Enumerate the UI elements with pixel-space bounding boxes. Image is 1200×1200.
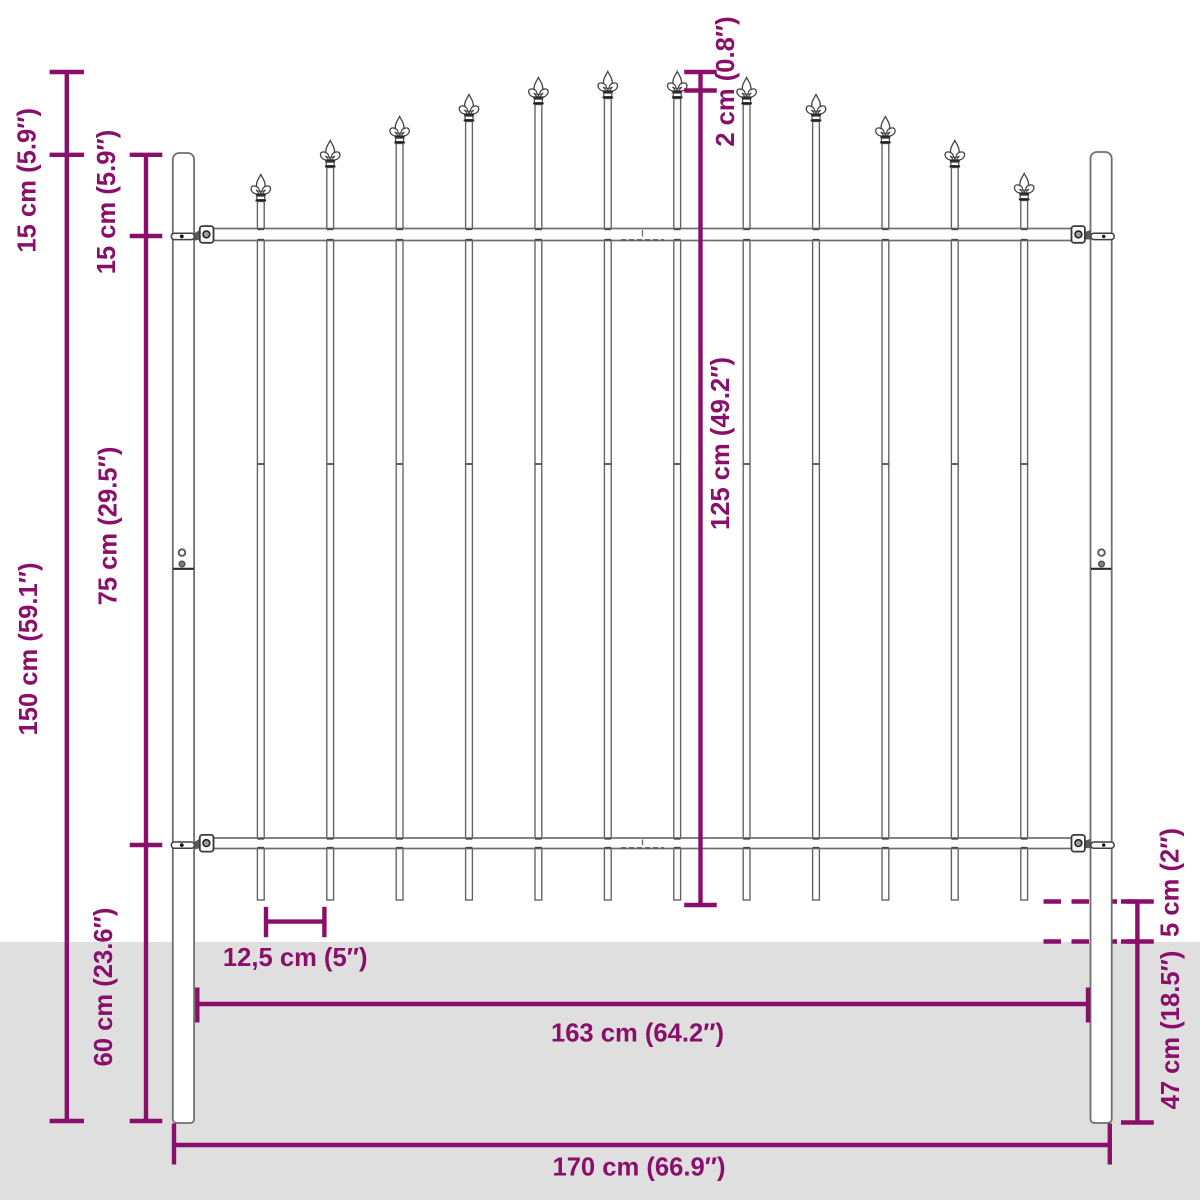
svg-text:15 cm (5.9″): 15 cm (5.9″) <box>13 108 41 253</box>
svg-text:163 cm (64.2″): 163 cm (64.2″) <box>551 1019 724 1047</box>
svg-text:125 cm (49.2″): 125 cm (49.2″) <box>707 357 735 530</box>
svg-text:12,5 cm (5″): 12,5 cm (5″) <box>223 944 368 972</box>
svg-text:2 cm (0.8″): 2 cm (0.8″) <box>712 16 740 146</box>
svg-text:15 cm (5.9″): 15 cm (5.9″) <box>93 130 121 275</box>
svg-text:47 cm (18.5″): 47 cm (18.5″) <box>1157 951 1185 1110</box>
svg-text:150 cm (59.1″): 150 cm (59.1″) <box>15 562 43 735</box>
svg-text:75 cm (29.5″): 75 cm (29.5″) <box>94 447 122 606</box>
svg-text:5 cm (2″): 5 cm (2″) <box>1156 828 1184 937</box>
svg-text:170 cm (66.9″): 170 cm (66.9″) <box>552 1153 725 1181</box>
svg-text:60 cm (23.6″): 60 cm (23.6″) <box>90 908 118 1067</box>
